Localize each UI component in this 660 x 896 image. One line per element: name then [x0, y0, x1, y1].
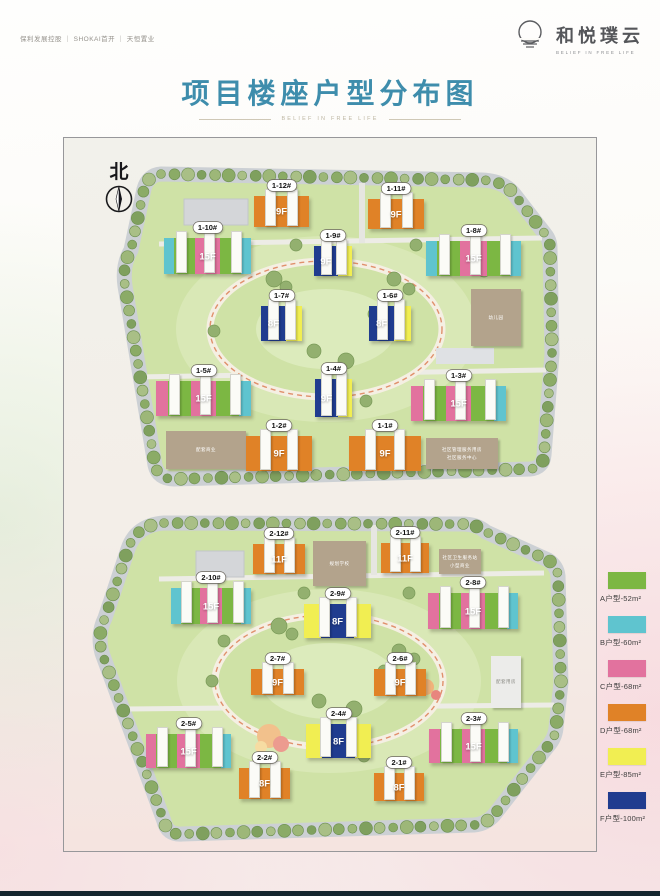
building-id-pill: 2-2#: [252, 752, 277, 763]
building-id-pill: 2-1#: [386, 757, 411, 768]
legend-swatch: [608, 792, 646, 809]
building-1-5: 15F1-5#: [156, 381, 251, 416]
floor-count-label: 15F: [465, 606, 481, 617]
tower-cap: [283, 662, 294, 694]
page-title: 项目楼座户型分布图: [0, 72, 660, 112]
facility-building: 规划学校: [313, 541, 366, 586]
building-id-pill: 1-6#: [377, 290, 402, 301]
tower-cap: [336, 372, 347, 416]
tower-cap: [212, 727, 223, 767]
building-id-pill: 1-1#: [372, 420, 397, 431]
building-id-pill: 2-11#: [391, 527, 420, 538]
building-1-3: 15F1-3#: [411, 386, 506, 421]
legend: A户型-52m²B户型-60m²C户型-68m²D户型-68m²E户型-85m²…: [600, 572, 658, 836]
floor-count-label: 15F: [199, 251, 215, 262]
building-id-pill: 2-5#: [176, 718, 201, 729]
floor-count-label: 15F: [203, 601, 219, 612]
unit-segment-B: [239, 381, 251, 416]
floor-count-label: 15F: [195, 394, 211, 405]
legend-swatch: [608, 704, 646, 721]
tower-cap: [176, 231, 187, 273]
legend-item: D户型-68m²: [600, 704, 658, 736]
legend-swatch: [608, 572, 646, 589]
floor-count-label: 8F: [268, 319, 279, 330]
building-2-12: 11F2-12#: [253, 544, 305, 574]
tower-cap: [285, 299, 296, 340]
tower-cap: [181, 581, 192, 623]
facility-building: 配套商业: [166, 431, 246, 469]
deco-text: BELIEF IN FREE LIFE: [281, 116, 378, 122]
tower-cap: [405, 662, 416, 695]
building-2-10: 15F2-10#: [171, 588, 251, 624]
legend-item: F户型-100m²: [600, 792, 658, 824]
tower-cap: [439, 234, 450, 275]
floor-count-label: 8F: [332, 616, 343, 627]
poster: 保利发展控股 ｜ SHOKAI首开 ｜ 天恒置业 和悦璞云 BELIEF IN …: [0, 0, 660, 896]
title-deco: BELIEF IN FREE LIFE: [0, 116, 660, 122]
floor-count-label: 15F: [465, 741, 481, 752]
tower-cap: [365, 429, 376, 470]
building-id-pill: 1-5#: [191, 365, 216, 376]
building-id-pill: 1-8#: [461, 225, 486, 236]
floor-count-label: 8F: [333, 736, 344, 747]
bottom-bar: [0, 891, 660, 896]
tower-cap: [230, 374, 241, 415]
building-id-pill: 2-7#: [265, 653, 290, 664]
tower-cap: [287, 429, 298, 470]
sun-wave-icon: [510, 16, 550, 61]
unit-segment-E: [355, 724, 371, 758]
floor-count-label: 15F: [180, 746, 196, 757]
tower-cap: [287, 189, 298, 226]
unit-segment-B: [171, 588, 181, 624]
tower-cap: [346, 597, 357, 637]
legend-label: C户型-68m²: [600, 681, 658, 692]
tower-cap: [394, 429, 405, 470]
building-id-pill: 1-4#: [321, 363, 346, 374]
unit-segment-C: [146, 734, 156, 768]
building-1-6: 8F1-6#: [369, 306, 411, 341]
building-1-4: 9F1-4#: [315, 379, 352, 417]
floor-count-label: 9F: [321, 393, 332, 404]
building-2-5: 15F2-5#: [146, 734, 231, 768]
building-2-11: 11F2-11#: [381, 543, 429, 573]
tower-cap: [157, 727, 168, 767]
legend-swatch: [608, 748, 646, 765]
legend-item: B户型-60m²: [600, 616, 658, 648]
tower-cap: [265, 189, 276, 226]
site-map: 北: [63, 137, 597, 852]
unit-segment-B: [426, 241, 437, 276]
facility-building: 配套用房: [491, 656, 521, 708]
tower-cap: [233, 581, 244, 623]
tower-cap: [380, 192, 391, 228]
tower-cap: [500, 234, 511, 275]
legend-item: A户型-52m²: [600, 572, 658, 604]
building-2-3: 15F2-3#: [429, 729, 518, 763]
floor-count-label: 9F: [394, 678, 405, 689]
brand-name: 和悦璞云: [556, 22, 644, 48]
legend-item: C户型-68m²: [600, 660, 658, 692]
legend-swatch: [608, 616, 646, 633]
unit-segment-B: [510, 241, 521, 276]
site-plan-2: 规划学校社区卫生服务站 小型商业配套用房11F2-12#11F2-11#15F2…: [64, 501, 596, 851]
tower-cap: [320, 717, 331, 757]
legend-swatch: [608, 660, 646, 677]
floor-count-label: 8F: [376, 319, 387, 330]
tower-cap: [346, 717, 357, 757]
building-id-pill: 2-8#: [460, 577, 485, 588]
floor-count-label: 8F: [259, 779, 270, 790]
building-id-pill: 1-11#: [382, 183, 411, 194]
facility-building: 社区卫生服务站 小型商业: [439, 549, 481, 574]
floor-count-label: 9F: [320, 256, 331, 267]
unit-segment-B: [494, 386, 506, 421]
building-2-1: 8F2-1#: [374, 773, 424, 801]
building-1-12: 9F1-12#: [254, 196, 309, 227]
tower-cap: [424, 379, 435, 420]
building-id-pill: 1-2#: [266, 420, 291, 431]
deco-line-left: [199, 119, 271, 120]
north-indicator: 北: [102, 163, 136, 219]
facility-label: 配套商业: [196, 446, 216, 453]
legend-label: B户型-60m²: [600, 637, 658, 648]
facility-building: 幼儿园: [471, 289, 521, 346]
building-id-pill: 1-3#: [446, 370, 471, 381]
floor-count-label: 9F: [276, 207, 287, 218]
building-2-8: 15F2-8#: [428, 593, 518, 629]
tower-cap: [260, 429, 271, 470]
tower-cap: [402, 192, 413, 228]
unit-segment-B: [164, 238, 174, 274]
floor-count-label: 9F: [273, 449, 284, 460]
tower-cap: [169, 374, 180, 415]
building-id-pill: 2-4#: [326, 708, 351, 719]
brand-logo: 和悦璞云 BELIEF IN FREE LIFE: [510, 16, 644, 61]
building-1-7: 8F1-7#: [261, 306, 302, 341]
unit-segment-C: [429, 729, 440, 763]
building-2-9: 8F2-9#: [304, 604, 371, 638]
partner-logos: 保利发展控股 ｜ SHOKAI首开 ｜ 天恒置业: [20, 33, 155, 43]
building-2-2: 8F2-2#: [239, 768, 290, 799]
building-id-pill: 2-10#: [196, 572, 225, 583]
floor-count-label: 9F: [272, 677, 283, 688]
building-1-2: 9F1-2#: [246, 436, 312, 471]
building-id-pill: 2-3#: [461, 713, 486, 724]
building-id-pill: 1-7#: [269, 290, 294, 301]
legend-label: A户型-52m²: [600, 593, 658, 604]
unit-segment-E: [354, 604, 371, 638]
tower-cap: [394, 299, 405, 340]
tower-cap: [498, 722, 509, 762]
tower-cap: [319, 597, 330, 637]
tower-cap: [404, 766, 415, 800]
tower-cap: [231, 231, 242, 273]
facility-label: 规划学校: [330, 560, 350, 567]
facility-building: 社区管理服务用房 社区服务中心: [426, 438, 498, 469]
building-1-9: 9F1-9#: [314, 246, 352, 276]
unit-segment-C: [428, 593, 439, 629]
building-id-pill: 1-9#: [320, 230, 345, 241]
floor-count-label: 9F: [390, 209, 401, 220]
tower-cap: [440, 586, 451, 628]
tower-cap: [498, 586, 509, 628]
tower-cap: [485, 379, 496, 420]
facility-label: 幼儿园: [489, 314, 504, 321]
building-1-10: 15F1-10#: [164, 238, 251, 274]
facility-label: 配套用房: [496, 678, 516, 685]
floor-count-label: 9F: [379, 449, 390, 460]
tower-cap: [336, 239, 347, 275]
building-1-1: 9F1-1#: [349, 436, 421, 471]
north-label: 北: [102, 163, 136, 182]
compass-icon: [104, 182, 134, 214]
legend-item: E户型-85m²: [600, 748, 658, 780]
floor-count-label: 15F: [450, 399, 466, 410]
legend-label: D户型-68m²: [600, 725, 658, 736]
facility-label: 社区管理服务用房 社区服务中心: [442, 446, 482, 460]
legend-label: F户型-100m²: [600, 813, 658, 824]
building-1-8: 15F1-8#: [426, 241, 521, 276]
building-2-4: 8F2-4#: [306, 724, 371, 758]
building-2-6: 9F2-6#: [374, 669, 426, 696]
unit-segment-C: [411, 386, 423, 421]
floor-count-label: 11F: [397, 553, 413, 564]
building-id-pill: 2-6#: [387, 653, 412, 664]
building-id-pill: 1-10#: [193, 222, 222, 233]
deco-line-right: [389, 119, 461, 120]
building-1-11: 9F1-11#: [368, 199, 424, 229]
site-plan-1: 配套商业社区管理服务用房 社区服务中心幼儿园9F1-12#9F1-11#15F1…: [64, 149, 596, 501]
building-id-pill: 2-12#: [264, 528, 293, 539]
floor-count-label: 11F: [271, 554, 287, 565]
legend-label: E户型-85m²: [600, 769, 658, 780]
building-2-7: 9F2-7#: [251, 669, 304, 695]
brand-tagline: BELIEF IN FREE LIFE: [556, 50, 644, 55]
facility-label: 社区卫生服务站 小型商业: [443, 554, 478, 568]
building-id-pill: 1-12#: [267, 180, 296, 191]
unit-segment-C: [156, 381, 168, 416]
floor-count-label: 15F: [465, 254, 481, 265]
floor-count-label: 8F: [393, 782, 404, 793]
building-id-pill: 2-9#: [325, 588, 350, 599]
tower-cap: [441, 722, 452, 762]
tower-cap: [270, 761, 281, 798]
